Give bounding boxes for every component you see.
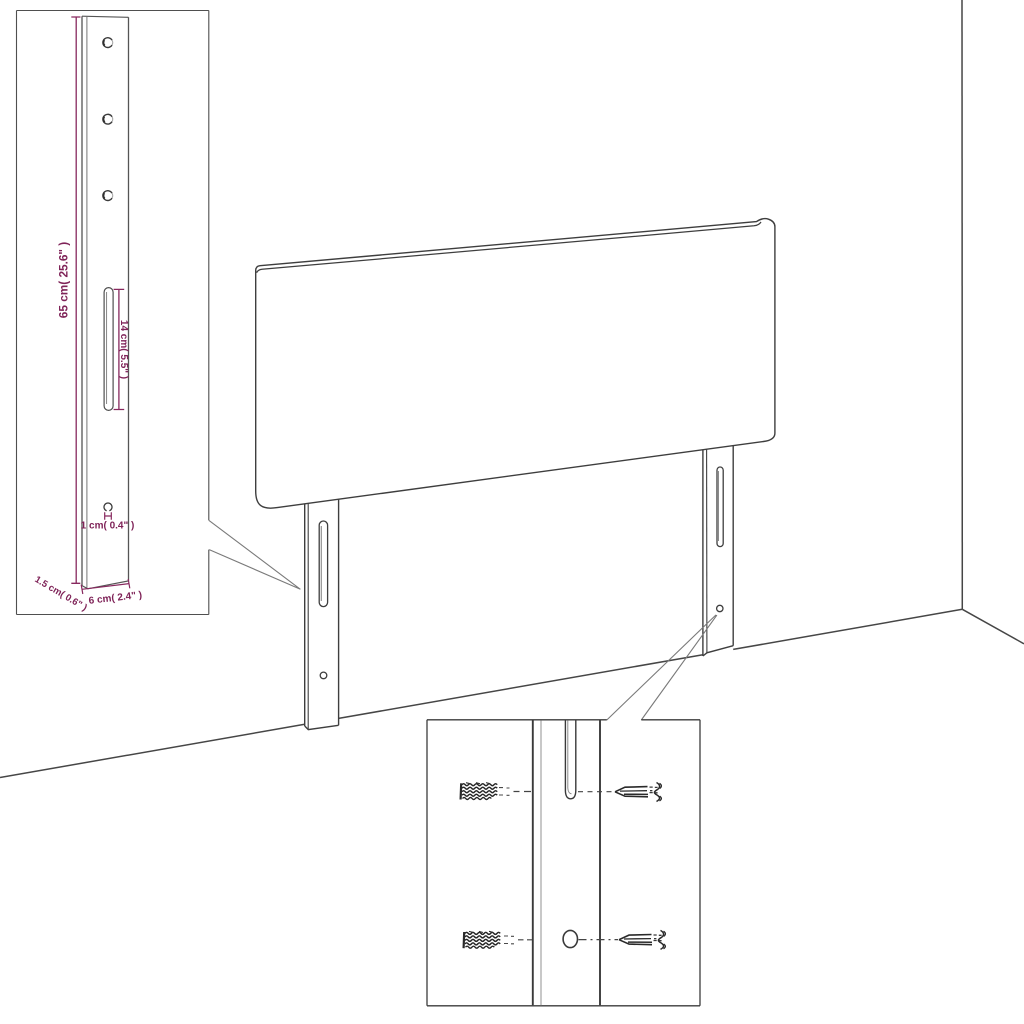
svg-text:14 cm( 5.5" ): 14 cm( 5.5" )	[118, 320, 129, 379]
svg-text:65 cm( 25.6" ): 65 cm( 25.6" )	[57, 242, 71, 318]
svg-text:1 cm( 0.4" ): 1 cm( 0.4" )	[81, 521, 135, 532]
